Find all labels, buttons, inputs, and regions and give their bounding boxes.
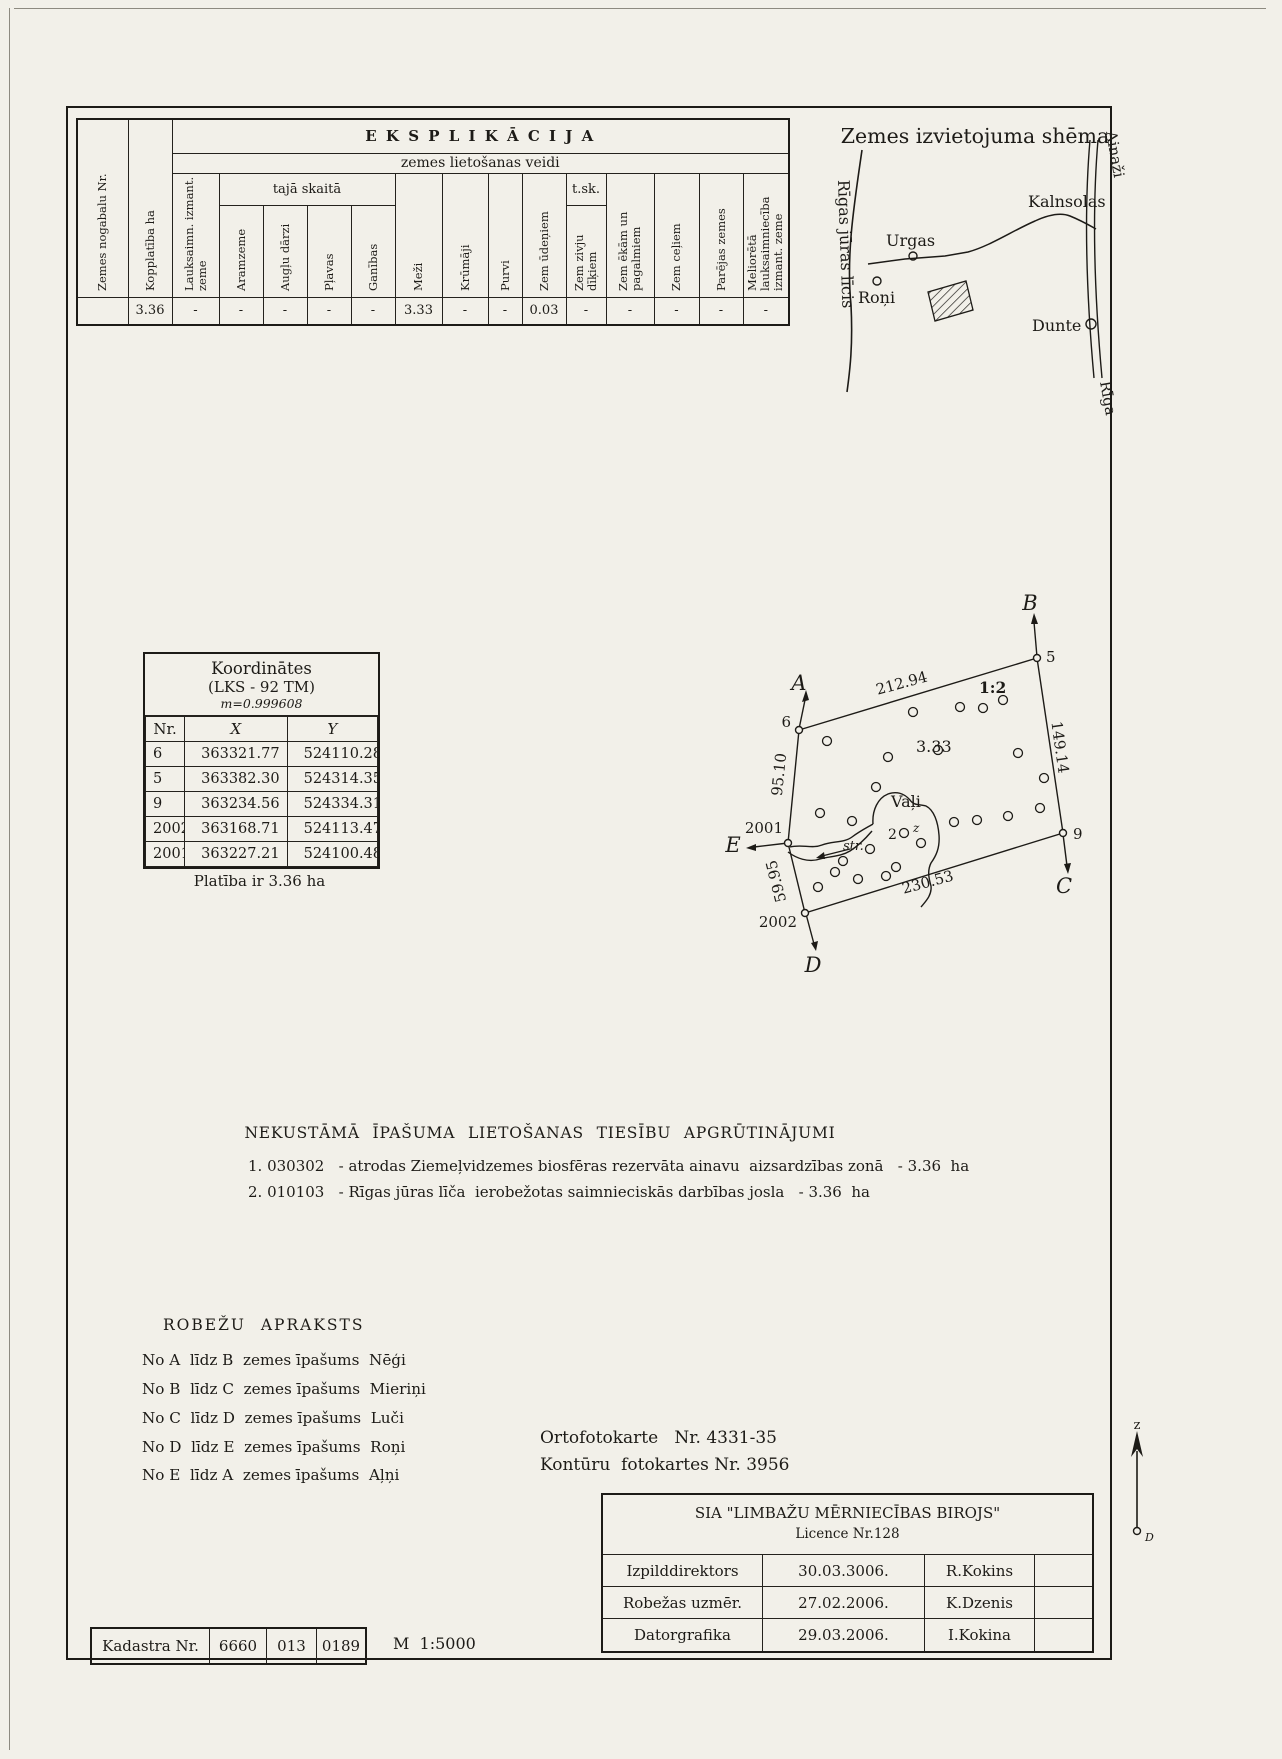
signature-row: Datorgrafika 29.03.2006. I.Kokina <box>603 1619 1092 1651</box>
plot-area-label: 3.33 <box>916 737 952 756</box>
signature-cell <box>1035 1619 1092 1651</box>
measure-left-lower: 59.95 <box>762 858 790 904</box>
role-cell: Robežas uzmēr. <box>603 1587 763 1619</box>
arrowhead-c <box>1064 863 1071 874</box>
cadastre-code: 6660 <box>210 1629 267 1663</box>
scanned-survey-document: { "eksplikacija": { "title": "E K S P L … <box>0 0 1282 1759</box>
signature-row: Robežas uzmēr. 27.02.2006. K.Dzenis <box>603 1587 1092 1619</box>
corner-label-c: C <box>1056 874 1072 898</box>
point-2-label: 2 <box>888 827 897 843</box>
date-cell: 30.03.3006. <box>763 1555 925 1587</box>
arrow-a <box>799 700 805 729</box>
cadastre-number-strip: Kadastra Nr. 6660 013 0189 <box>90 1627 367 1665</box>
obligations-heading: NEKUSTĀMĀ ĪPAŠUMA LIETOŠANAS TIESĪBU APG… <box>240 1124 840 1142</box>
south-ring <box>1134 1528 1141 1535</box>
point-label-2001: 2001 <box>745 819 783 837</box>
signature-row: Izpilddirektors 30.03.3006. R.Kokins <box>603 1555 1092 1587</box>
name-cell: I.Kokina <box>925 1619 1035 1651</box>
stream-label: str. <box>843 839 864 854</box>
measure-top: 212.94 <box>874 668 929 699</box>
arrow-b <box>1034 622 1037 657</box>
corner-label-b: B <box>1021 591 1037 615</box>
corner-label-a: A <box>789 671 806 695</box>
boundary-line: No C līdz D zemes īpašums Luči <box>142 1409 404 1427</box>
name-cell: R.Kokins <box>925 1555 1035 1587</box>
point-label-9: 9 <box>1073 825 1083 843</box>
boundary-line: No E līdz A zemes īpašums Aļņi <box>142 1466 399 1484</box>
firm-header: SIA "LIMBAŽU MĒRNIECĪBAS BIROJS" Licence… <box>603 1495 1092 1555</box>
name-cell: K.Dzenis <box>925 1587 1035 1619</box>
measure-right: 149.14 <box>1047 720 1072 774</box>
boundaries-heading: ROBEŽU APRAKSTS <box>163 1316 364 1334</box>
orthophoto-note: Ortofotokarte Nr. 4331-35 <box>540 1428 777 1448</box>
signature-cell <box>1035 1555 1092 1587</box>
surveyor-signature-table: SIA "LIMBAŽU MĒRNIECĪBAS BIROJS" Licence… <box>601 1493 1094 1653</box>
role-cell: Izpilddirektors <box>603 1555 763 1587</box>
cadastre-code: 0189 <box>317 1629 365 1663</box>
date-cell: 29.03.2006. <box>763 1619 925 1651</box>
corner-label-d: D <box>804 953 822 977</box>
measure-left-upper: 95.10 <box>768 752 790 797</box>
valli-name-label: Vaļi <box>890 792 921 811</box>
arrow-d <box>806 914 814 944</box>
date-cell: 27.02.2006. <box>763 1587 925 1619</box>
point-2-marker <box>900 829 909 838</box>
north-arrow: z D <box>1100 1415 1180 1555</box>
corner-label-e: E <box>724 833 740 857</box>
point-label-6: 6 <box>781 713 791 731</box>
cadastre-label: Kadastra Nr. <box>92 1629 210 1663</box>
north-letter: z <box>1134 1418 1141 1433</box>
boundary-line: No A līdz B zemes īpašums Nēģi <box>142 1351 406 1369</box>
south-letter: D <box>1144 1531 1154 1544</box>
point-label-5: 5 <box>1046 648 1056 666</box>
arrowhead-e <box>746 844 756 851</box>
boundary-line: No B līdz C zemes īpašums Mieriņi <box>142 1380 426 1398</box>
ratio-label: 1:2 <box>979 678 1006 697</box>
signature-cell <box>1035 1587 1092 1619</box>
arrow-e <box>754 843 788 847</box>
obligation-item: 2. 010103 - Rīgas jūras līča ierobežotas… <box>248 1183 870 1201</box>
z-label: z <box>912 821 920 835</box>
parcel-plot-drawing: A B C D E 6 5 9 2001 2002 212.94 149.14 … <box>0 0 1282 1050</box>
arrowhead-d <box>811 941 818 951</box>
obligation-item: 1. 030302 - atrodas Ziemeļvidzemes biosf… <box>248 1157 969 1175</box>
firm-name: SIA "LIMBAŽU MĒRNIECĪBAS BIROJS" <box>603 1504 1092 1522</box>
boundary-line: No D līdz E zemes īpašums Roņi <box>142 1438 405 1456</box>
contour-map-note: Kontūru fotokartes Nr. 3956 <box>540 1455 789 1475</box>
cadastre-code: 013 <box>267 1629 317 1663</box>
measure-bottom: 230.53 <box>900 867 955 898</box>
point-label-2002: 2002 <box>759 913 797 931</box>
arrow-c <box>1063 834 1067 866</box>
firm-licence: Licence Nr.128 <box>603 1526 1092 1542</box>
role-cell: Datorgrafika <box>603 1619 763 1651</box>
map-scale-label: M 1:5000 <box>393 1634 476 1653</box>
arrowhead-stream <box>816 852 825 859</box>
